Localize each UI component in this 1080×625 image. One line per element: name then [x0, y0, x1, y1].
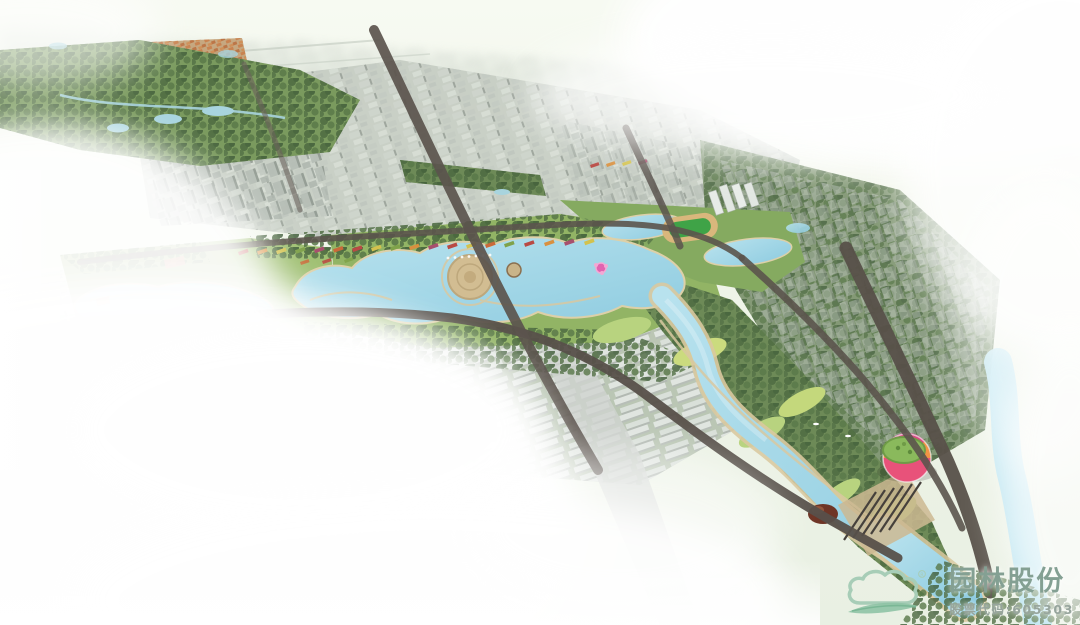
- aerial-scene: [0, 0, 1080, 625]
- cloud-leaf-logo-icon: R: [838, 565, 940, 621]
- masterplan-rendering: R 园林股份 股票代码:605303: [0, 0, 1080, 625]
- company-name: 园林股份: [949, 568, 1065, 596]
- stock-code: 股票代码:605303: [949, 599, 1074, 618]
- watermark: R 园林股份 股票代码:605303: [838, 565, 1074, 621]
- svg-text:R: R: [920, 572, 924, 578]
